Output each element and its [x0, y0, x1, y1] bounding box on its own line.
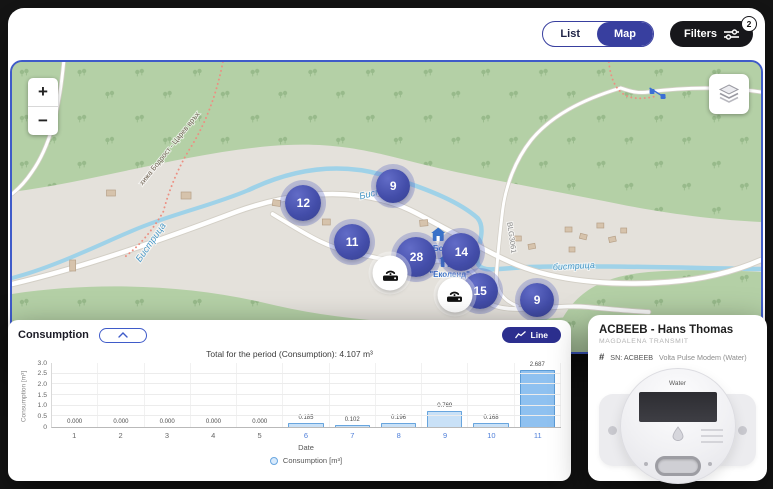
chevron-up-icon — [118, 332, 128, 338]
top-toolbar: List Map Filters 2 — [8, 8, 765, 60]
bar-value-label: 2.687 — [515, 362, 560, 368]
chart-total-title: Total for the period (Consumption): 4.10… — [18, 349, 561, 359]
device-subtitle: MAGDALENA TRANSMIT — [599, 338, 756, 345]
bar — [427, 411, 462, 427]
zoom-in-button[interactable]: + — [28, 78, 58, 106]
bar-value-label: 0.102 — [330, 417, 375, 423]
map-cluster-marker[interactable]: 14 — [442, 233, 480, 271]
legend-swatch-icon — [270, 457, 278, 465]
meter-type-label: Water — [621, 380, 735, 387]
bar — [335, 425, 370, 427]
app-screenshot: { "header": { "list_label": "List", "map… — [0, 0, 773, 489]
x-axis-label: Date — [51, 443, 561, 452]
map-zoom-control: + − — [28, 78, 58, 135]
gateway-marker[interactable] — [437, 277, 472, 312]
y-axis-ticks: 00.51.01.52.02.53.0 — [29, 363, 51, 427]
bar-value-label: 0.000 — [52, 419, 97, 425]
sliders-icon — [724, 29, 739, 40]
meter-screw — [644, 462, 648, 466]
map-view-button[interactable]: Map — [597, 22, 653, 46]
lug-hole — [608, 426, 617, 435]
y-axis-label: Consumption [m³] — [18, 363, 29, 465]
meter-display — [639, 392, 717, 422]
map-canvas[interactable]: Бистрица Бистрица бистрица BLG3061 хижа … — [10, 60, 763, 354]
chart-plot-area: 0.0000.0000.0000.0000.0000.1850.1020.196… — [51, 363, 561, 428]
water-drop-icon — [671, 426, 685, 441]
x-axis-ticks: 1234567891011 — [51, 431, 561, 440]
hash-icon: # — [599, 352, 604, 363]
x-tick-label: 7 — [329, 431, 375, 440]
bar-value-label: 0.000 — [145, 419, 190, 425]
line-button-label: Line — [531, 330, 548, 340]
bar — [381, 423, 416, 427]
filters-button-label: Filters — [684, 28, 717, 40]
zoom-out-button[interactable]: − — [28, 107, 58, 135]
map-cluster-marker[interactable]: 9 — [520, 283, 554, 317]
x-tick-label: 5 — [236, 431, 282, 440]
bar-value-label: 0.000 — [237, 419, 282, 425]
main-card: List Map Filters 2 — [8, 8, 765, 354]
meter-button — [655, 456, 701, 476]
consumption-title: Consumption — [18, 329, 89, 341]
x-tick-label: 2 — [97, 431, 143, 440]
gateway-icon — [445, 286, 465, 304]
list-view-button[interactable]: List — [543, 22, 597, 46]
filters-count-badge: 2 — [741, 16, 757, 32]
consumption-header: Consumption Line — [18, 327, 561, 343]
line-chart-icon — [515, 331, 526, 339]
map-layers-button[interactable] — [709, 74, 749, 114]
x-tick-label: 3 — [144, 431, 190, 440]
bar — [288, 423, 323, 427]
gateway-marker[interactable] — [373, 256, 408, 291]
map-cluster-marker[interactable]: 12 — [285, 185, 321, 221]
x-tick-label: 1 — [51, 431, 97, 440]
bar-chart: Consumption [m³] 00.51.01.52.02.53.0 0.0… — [18, 363, 561, 465]
x-tick-label: 4 — [190, 431, 236, 440]
map-cluster-marker[interactable]: 11 — [334, 224, 370, 260]
bar-value-label: 0.000 — [98, 419, 143, 425]
bar — [520, 370, 555, 427]
device-serial-row: # SN: ACBEEB Volta Pulse Modem (Water) — [599, 352, 756, 363]
x-tick-label: 9 — [422, 431, 468, 440]
map-cluster-marker[interactable]: 9 — [376, 169, 410, 203]
consumption-panel: Consumption Line Total for the period (C… — [8, 320, 571, 481]
bar — [473, 423, 508, 427]
view-toggle: List Map — [542, 21, 654, 47]
filters-button[interactable]: Filters 2 — [670, 21, 753, 47]
line-chart-toggle-button[interactable]: Line — [502, 327, 561, 343]
gateway-icon — [380, 264, 400, 282]
device-panel: ACBEEB - Hans Thomas MAGDALENA TRANSMIT … — [588, 315, 767, 481]
x-tick-label: 10 — [468, 431, 514, 440]
lug-hole — [738, 426, 747, 435]
meter-body: Water — [620, 368, 736, 484]
x-tick-label: 11 — [515, 431, 561, 440]
legend-label: Consumption [m³] — [283, 456, 342, 465]
meter-screw — [708, 462, 712, 466]
x-tick-label: 8 — [376, 431, 422, 440]
device-serial: SN: ACBEEB — [610, 353, 653, 362]
meter-vent-lines — [701, 429, 723, 447]
device-title: ACBEEB - Hans Thomas — [599, 324, 756, 336]
chart-legend[interactable]: Consumption [m³] — [51, 456, 561, 465]
device-model: Volta Pulse Modem (Water) — [659, 353, 747, 362]
collapse-panel-button[interactable] — [99, 328, 147, 343]
bar-value-label: 0.000 — [191, 419, 236, 425]
x-tick-label: 6 — [283, 431, 329, 440]
water-meter-illustration: Water — [599, 368, 756, 482]
layers-icon — [718, 84, 740, 104]
map-marker-layer: 129112814159 — [12, 62, 761, 352]
